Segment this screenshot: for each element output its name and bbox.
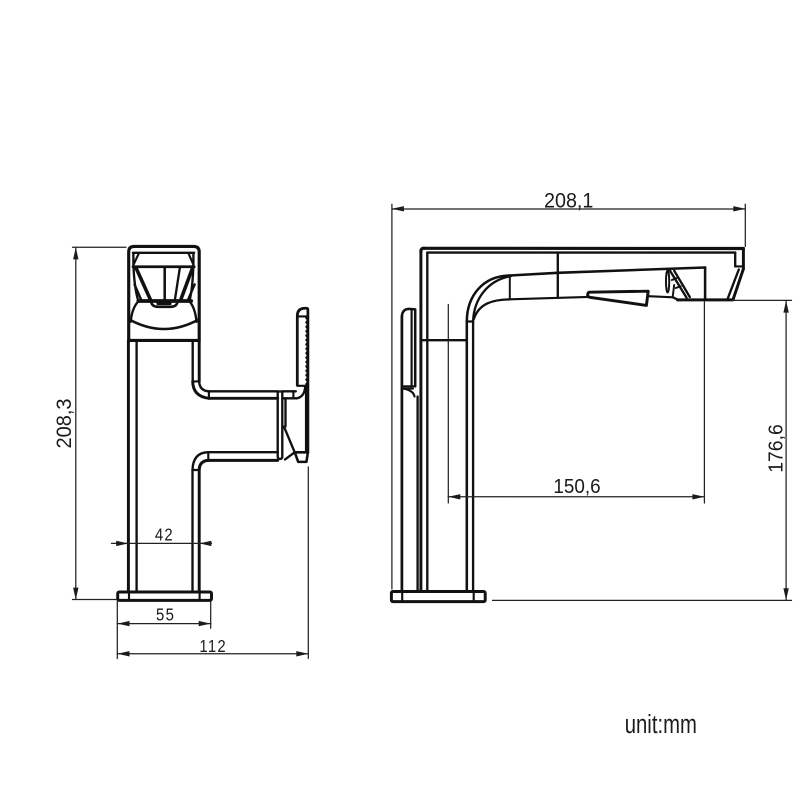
svg-text:55: 55 — [156, 605, 175, 624]
svg-text:176,6: 176,6 — [765, 424, 787, 473]
svg-text:unit:mm: unit:mm — [625, 710, 697, 739]
svg-text:42: 42 — [155, 526, 174, 545]
svg-text:150,6: 150,6 — [553, 475, 600, 498]
svg-text:208,3: 208,3 — [53, 399, 77, 449]
svg-text:112: 112 — [199, 637, 227, 656]
svg-text:208,1: 208,1 — [544, 190, 593, 213]
